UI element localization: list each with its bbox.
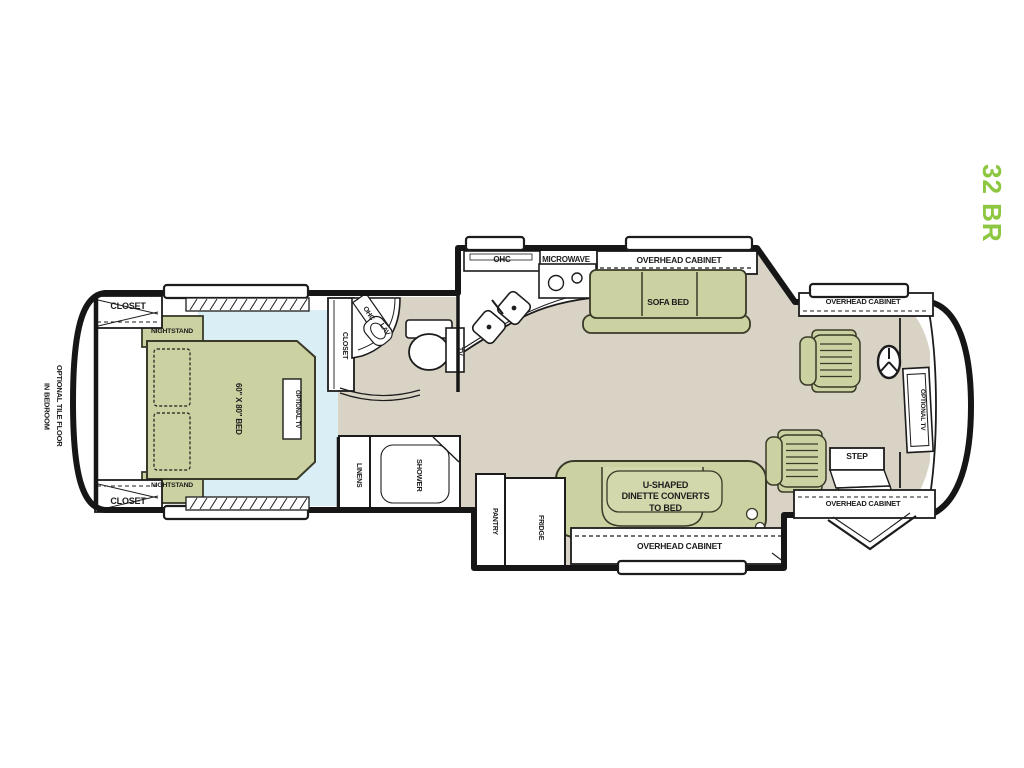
dinette-overhead-cabinet-label: OVERHEAD CABINET — [597, 542, 762, 551]
cooktop — [539, 264, 596, 298]
floorplan-page: CLOSET CLOSET NIGHTSTAND NIGHTSTAND 60" … — [0, 0, 1024, 768]
pantry-label: PANTRY — [483, 492, 498, 550]
bed-size-label: 60" X 80" BED — [224, 365, 242, 453]
steering-wheel-icon — [878, 346, 900, 378]
kitchen-ohc-label: OHC — [475, 256, 529, 265]
closet-bottom-label: CLOSET — [95, 497, 161, 507]
pillow — [154, 349, 190, 406]
front-top-overhead-cabinet-label: OVERHEAD CABINET — [802, 298, 924, 306]
nightstand-top-label: NIGHTSTAND — [139, 328, 205, 335]
nightstand-bottom-label: NIGHTSTAND — [139, 482, 205, 489]
microwave-label: MICROWAVE — [530, 256, 602, 265]
captain-chair — [800, 330, 860, 392]
dinette-label: U-SHAPED DINETTE CONVERTS TO BED — [593, 480, 738, 514]
pillow — [154, 413, 190, 470]
linens-label: LINENS — [347, 449, 362, 501]
floorplan-drawing — [0, 0, 1024, 768]
sofa-bed-label: SOFA BED — [618, 298, 718, 307]
front-optional-tv-label: OPTIONAL TV — [908, 374, 926, 446]
kitchen-overhead-cabinet-label: OVERHEAD CABINET — [608, 256, 750, 265]
shower-label: SHOWER — [406, 446, 423, 504]
bath-closet-label: CLOSET — [333, 316, 348, 376]
table-pedestal-icon — [747, 509, 758, 520]
model-badge: 32 BR — [950, 148, 1006, 258]
captain-chair — [766, 430, 826, 492]
entry-step — [830, 470, 890, 488]
bed-optional-tv-label: OPTIONAL TV — [284, 381, 300, 438]
toilet-icon — [409, 334, 449, 370]
optional-tile-floor-note: OPTIONAL TILE FLOOR IN BEDROOM — [25, 328, 65, 484]
front-bottom-overhead-cabinet-label: OVERHEAD CABINET — [800, 500, 926, 508]
fridge-label: FRIDGE — [528, 498, 544, 558]
step-label: STEP — [831, 452, 883, 461]
bath-tv-label: TV — [448, 336, 463, 366]
closet-top-label: CLOSET — [95, 302, 161, 312]
